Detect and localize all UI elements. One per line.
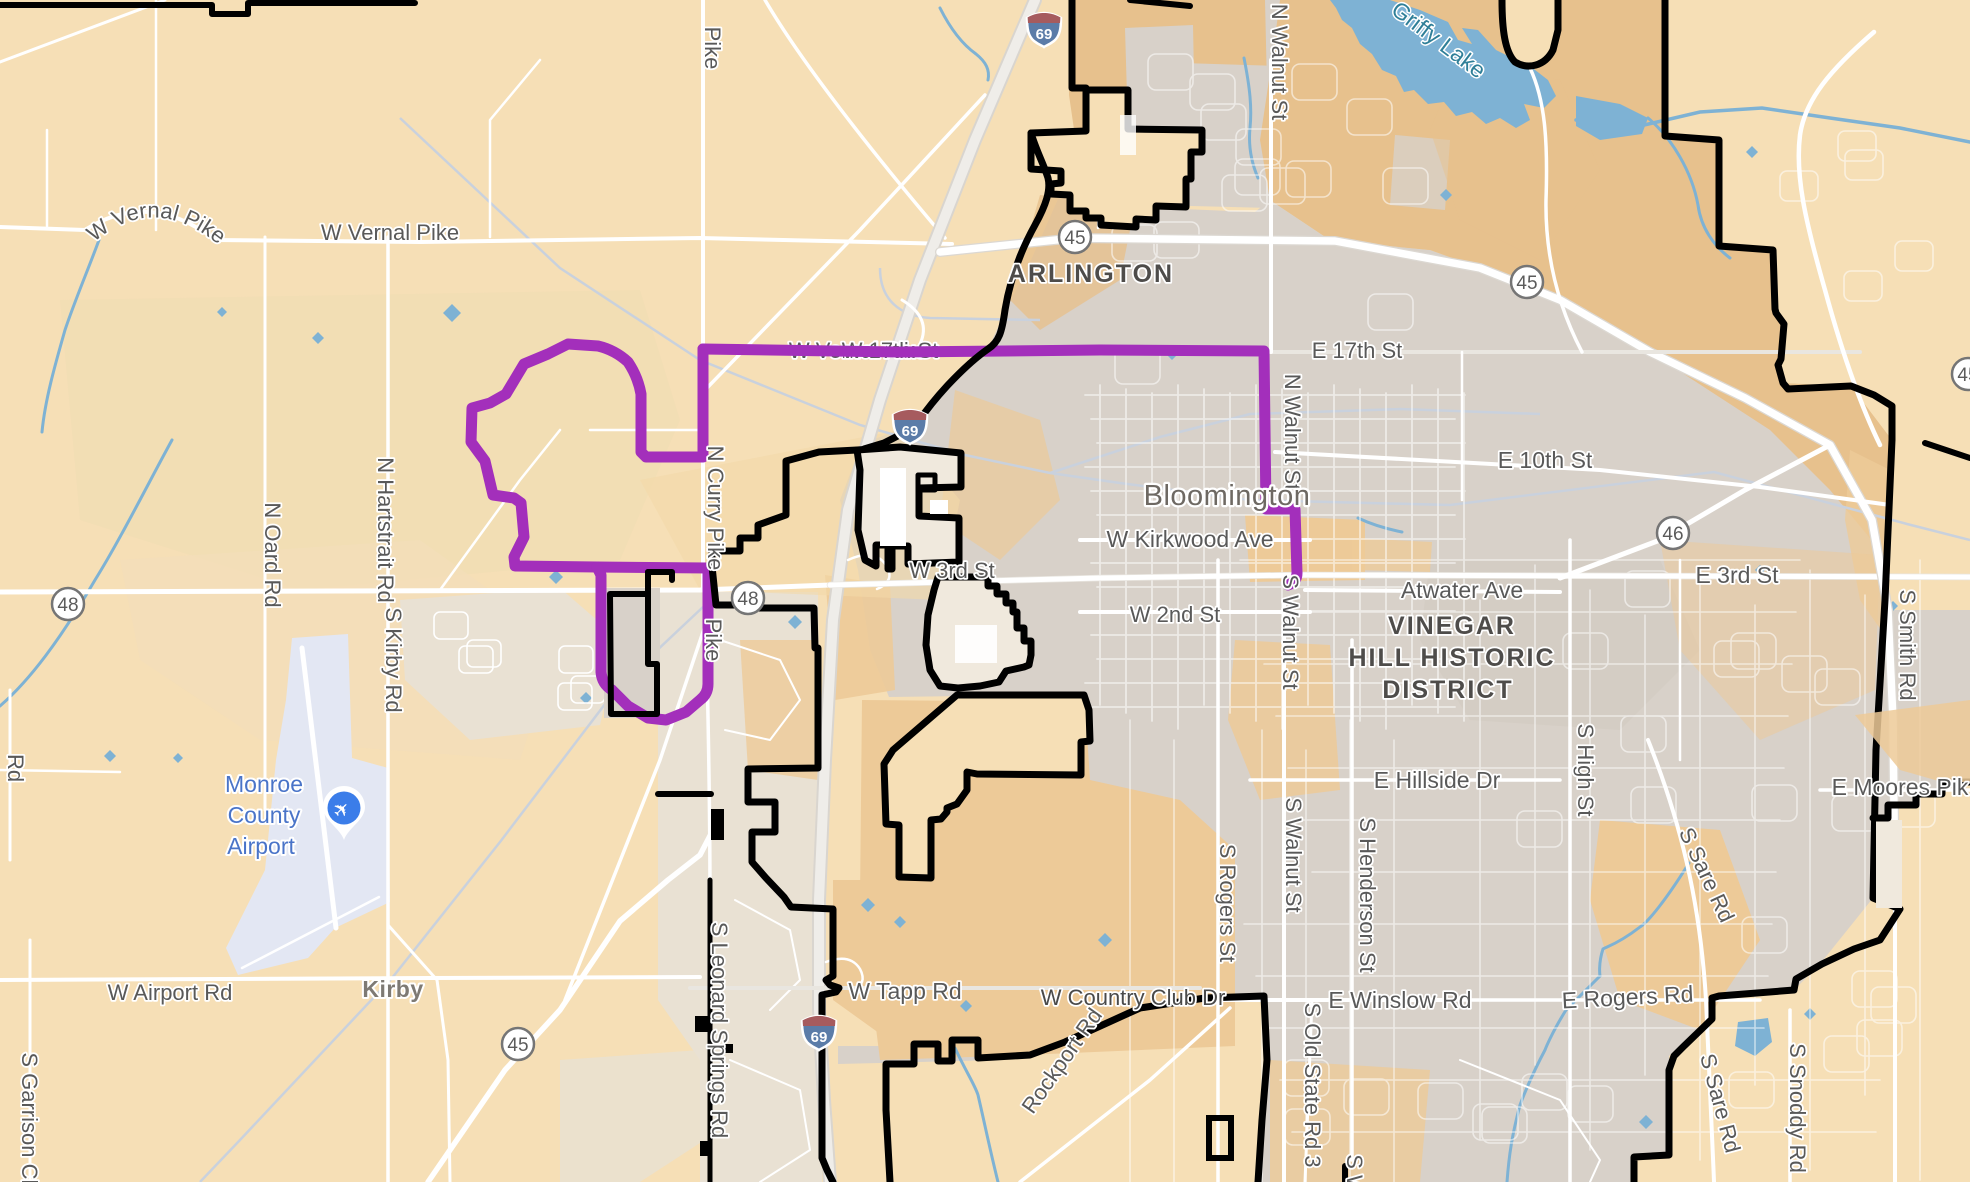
svg-text:Pike: Pike <box>701 619 726 662</box>
svg-text:S Old State Rd 3: S Old State Rd 3 <box>1300 1002 1325 1167</box>
svg-text:48: 48 <box>57 595 78 616</box>
svg-text:S Rogers St: S Rogers St <box>1215 844 1240 963</box>
svg-text:N Hartstrait Rd: N Hartstrait Rd <box>373 457 398 602</box>
svg-text:W Vernal Pike: W Vernal Pike <box>321 220 459 245</box>
svg-text:E Moores Pik: E Moores Pik <box>1832 774 1969 800</box>
svg-text:69: 69 <box>811 1029 828 1046</box>
svg-text:S Henderson St: S Henderson St <box>1355 817 1380 972</box>
svg-text:S Smith Rd: S Smith Rd <box>1895 589 1920 700</box>
svg-text:N Curry Pike: N Curry Pike <box>703 446 728 571</box>
svg-text:69: 69 <box>902 423 919 440</box>
svg-text:46: 46 <box>1662 524 1683 545</box>
svg-text:E 10th St: E 10th St <box>1498 447 1593 473</box>
svg-text:Atwater Ave: Atwater Ave <box>1401 577 1523 603</box>
svg-text:Kirby: Kirby <box>362 976 423 1002</box>
svg-text:48: 48 <box>737 589 758 610</box>
svg-text:69: 69 <box>1036 26 1053 43</box>
svg-text:S Leonard Springs Rd: S Leonard Springs Rd <box>707 922 732 1138</box>
svg-text:W 3rd St: W 3rd St <box>909 558 995 583</box>
svg-text:S Walnut St: S Walnut St <box>1281 797 1306 912</box>
svg-text:E 17th St: E 17th St <box>1312 338 1403 363</box>
svg-text:N Walnut St: N Walnut St <box>1267 4 1292 121</box>
svg-text:S W: S W <box>1342 1154 1367 1182</box>
svg-text:W 2nd St: W 2nd St <box>1130 602 1220 627</box>
svg-text:County: County <box>228 802 301 828</box>
svg-text:Rd: Rd <box>3 754 28 782</box>
svg-text:45: 45 <box>507 1035 528 1056</box>
svg-text:VINEGAR: VINEGAR <box>1388 612 1516 640</box>
svg-text:E Hillside Dr: E Hillside Dr <box>1374 767 1501 793</box>
svg-text:Monroe: Monroe <box>225 771 303 797</box>
svg-text:S Garrison Ch: S Garrison Ch <box>17 1052 42 1182</box>
svg-text:Airport: Airport <box>227 833 295 859</box>
svg-text:W Tapp Rd: W Tapp Rd <box>848 978 961 1004</box>
svg-text:N Oard Rd: N Oard Rd <box>260 502 285 607</box>
svg-text:45: 45 <box>1516 273 1537 294</box>
svg-text:S Kirby Rd: S Kirby Rd <box>381 607 406 712</box>
svg-text:45: 45 <box>1064 228 1085 249</box>
svg-text:S Walnut St: S Walnut St <box>1278 574 1303 689</box>
svg-text:W Airport Rd: W Airport Rd <box>108 980 233 1005</box>
svg-text:HILL HISTORIC: HILL HISTORIC <box>1348 644 1555 672</box>
svg-text:45: 45 <box>1957 365 1970 386</box>
svg-text:E Winslow Rd: E Winslow Rd <box>1328 987 1471 1013</box>
svg-text:N Walnut St: N Walnut St <box>1280 374 1305 491</box>
svg-text:W Kirkwood Ave: W Kirkwood Ave <box>1106 526 1273 552</box>
svg-text:W Country Club Dr: W Country Club Dr <box>1041 985 1226 1010</box>
svg-text:DISTRICT: DISTRICT <box>1382 676 1513 704</box>
svg-text:ARLINGTON: ARLINGTON <box>1008 260 1174 288</box>
svg-text:E 3rd St: E 3rd St <box>1695 562 1779 588</box>
svg-text:S Snoddy Rd: S Snoddy Rd <box>1785 1043 1810 1173</box>
svg-text:Bloomington: Bloomington <box>1144 480 1311 512</box>
svg-text:Pike: Pike <box>700 27 725 70</box>
svg-text:S High St: S High St <box>1573 724 1598 817</box>
